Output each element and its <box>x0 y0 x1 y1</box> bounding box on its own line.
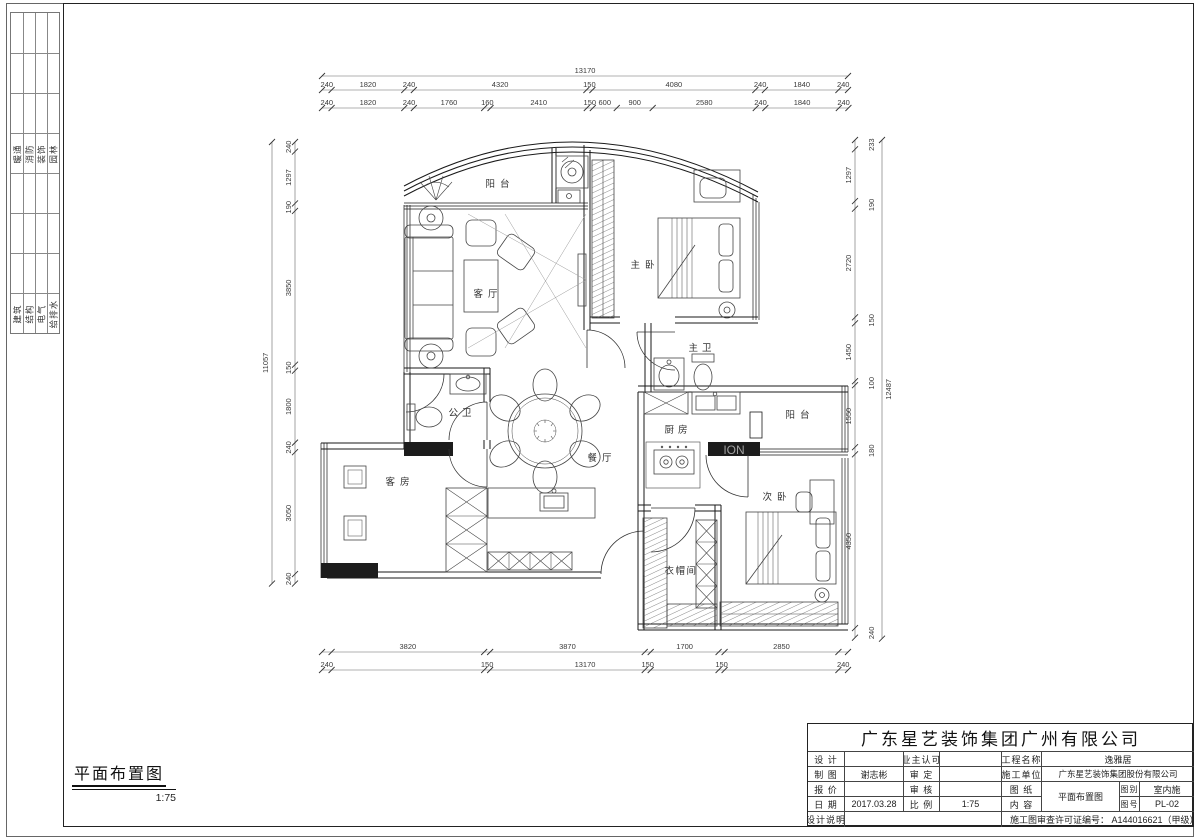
svg-text:190: 190 <box>867 199 876 212</box>
svg-text:1700: 1700 <box>676 642 693 651</box>
approve-label: 审 定 <box>903 766 939 781</box>
number-value: PL-02 <box>1139 796 1194 811</box>
svg-text:150: 150 <box>583 80 596 89</box>
svg-text:2580: 2580 <box>696 98 713 107</box>
svg-text:1297: 1297 <box>284 169 293 186</box>
svg-text:1820: 1820 <box>360 80 377 89</box>
svg-text:150: 150 <box>584 98 597 107</box>
curved-facade <box>404 142 758 202</box>
drawing-content-value: 平面布置图 <box>1041 781 1119 811</box>
plant <box>420 176 452 200</box>
draft-value: 谢志彬 <box>844 766 903 781</box>
svg-text:1820: 1820 <box>360 98 377 107</box>
master-bath-sink <box>654 358 684 390</box>
view-title-text: 平面布置图 <box>72 760 166 787</box>
watermark: ION <box>723 443 744 457</box>
number-label: 图号 <box>1119 796 1139 811</box>
svg-text:1840: 1840 <box>794 98 811 107</box>
svg-text:240: 240 <box>867 627 876 640</box>
svg-text:240: 240 <box>403 80 416 89</box>
pouf <box>466 328 496 356</box>
room-label-master-bath: 主卫 <box>688 342 715 354</box>
permit-number: 施工图审查许可证编号： A144016621（甲级） <box>1001 811 1194 827</box>
svg-text:233: 233 <box>867 138 876 151</box>
svg-text:240: 240 <box>321 98 334 107</box>
floor-plan: ION <box>0 0 1200 840</box>
svg-text:240: 240 <box>284 141 293 154</box>
nightstand <box>815 588 829 602</box>
svg-text:150: 150 <box>641 660 654 669</box>
room-label-balcony-top: 阳台 <box>485 178 514 190</box>
pouf <box>466 220 496 246</box>
desk <box>810 480 834 524</box>
builder-value: 广东星艺装饰集团股份有限公司 <box>1041 766 1194 781</box>
draft-label: 制 图 <box>808 766 844 781</box>
svg-text:240: 240 <box>837 98 850 107</box>
owner-approval-label: 业主认可 <box>903 751 939 766</box>
svg-text:240: 240 <box>837 80 850 89</box>
svg-text:240: 240 <box>754 80 767 89</box>
hanging-rail <box>643 518 667 628</box>
tv <box>578 254 586 306</box>
quote-label: 报 价 <box>808 781 844 796</box>
svg-text:600: 600 <box>599 98 612 107</box>
project-name-value: 逸雅居 <box>1041 751 1194 766</box>
svg-text:240: 240 <box>754 98 767 107</box>
kitchen-sink <box>692 392 740 414</box>
sofa <box>405 206 453 368</box>
svg-text:3850: 3850 <box>284 280 293 297</box>
notes-value <box>844 811 1001 827</box>
owner-approval-value <box>939 751 1001 766</box>
svg-text:240: 240 <box>403 98 416 107</box>
svg-text:1297: 1297 <box>844 167 853 184</box>
svg-text:3050: 3050 <box>284 505 293 522</box>
balcony-sink <box>558 190 580 203</box>
svg-text:150: 150 <box>867 314 876 327</box>
svg-text:3820: 3820 <box>400 642 417 651</box>
walls <box>321 142 848 630</box>
svg-text:4320: 4320 <box>492 80 509 89</box>
svg-text:160: 160 <box>481 98 494 107</box>
svg-text:4350: 4350 <box>844 533 853 550</box>
room-label-second-bedroom: 次卧 <box>762 491 791 503</box>
svg-text:150: 150 <box>284 361 293 374</box>
guest-bath-sink <box>450 374 486 394</box>
category-value: 室内施 <box>1139 781 1194 796</box>
room-label-cloakroom: 衣帽间 <box>664 565 697 577</box>
guest-bath-toilet <box>407 404 442 430</box>
cloak-shelf <box>667 604 717 626</box>
svg-text:1800: 1800 <box>284 398 293 415</box>
sheet-label: 图 纸 <box>1001 781 1041 796</box>
room-label-master-bedroom: 主卧 <box>630 259 659 271</box>
svg-text:1450: 1450 <box>844 344 853 361</box>
room-label-guest-room: 客房 <box>385 476 414 488</box>
svg-text:1550: 1550 <box>844 408 853 425</box>
svg-text:240: 240 <box>284 573 293 586</box>
washing-machine <box>556 156 588 188</box>
svg-text:150: 150 <box>481 660 494 669</box>
dimension-chains: 1317024018202404320150408024018402402401… <box>261 66 893 673</box>
svg-text:2720: 2720 <box>844 255 853 272</box>
stove <box>646 442 700 488</box>
svg-text:13170: 13170 <box>575 66 596 75</box>
approve-value <box>939 766 1001 781</box>
view-title-underline <box>72 789 176 790</box>
design-value <box>844 751 903 766</box>
svg-text:150: 150 <box>715 660 728 669</box>
company-name: 广东星艺装饰集团广州有限公司 <box>808 724 1194 751</box>
second-bedroom-door <box>706 455 748 497</box>
tall-cabinet <box>446 488 487 572</box>
master-bed <box>658 218 740 298</box>
notes-label: 设计说明 <box>808 811 844 827</box>
cloak-cabinet <box>696 520 717 608</box>
view-scale: 1:75 <box>72 792 176 804</box>
drawing-sheet: { "sheet": { "disciplines_top": ["暖通", "… <box>0 0 1200 840</box>
svg-text:1840: 1840 <box>793 80 810 89</box>
low-cabinet <box>488 552 572 570</box>
guest-room-door <box>449 449 487 487</box>
room-label-kitchen: 厨房 <box>664 424 691 436</box>
review-label: 审 核 <box>903 781 939 796</box>
master-bath-toilet <box>692 354 714 390</box>
desk <box>694 170 740 202</box>
room-label-living: 客厅 <box>473 288 502 300</box>
content-label: 内 容 <box>1001 796 1041 811</box>
dining-table <box>485 369 605 493</box>
room-label-guest-bath: 公卫 <box>448 408 475 419</box>
svg-text:3870: 3870 <box>559 642 576 651</box>
svg-text:240: 240 <box>837 660 850 669</box>
second-bed <box>746 512 836 584</box>
svg-text:190: 190 <box>284 201 293 214</box>
svg-text:13170: 13170 <box>575 660 596 669</box>
master-bedroom-door <box>587 330 625 368</box>
svg-text:2850: 2850 <box>773 642 790 651</box>
svg-text:2410: 2410 <box>530 98 547 107</box>
svg-text:240: 240 <box>321 660 334 669</box>
scale-label: 比 例 <box>903 796 939 811</box>
design-label: 设 计 <box>808 751 844 766</box>
bedroom-wardrobe <box>720 602 838 626</box>
review-value <box>939 781 1001 796</box>
svg-text:240: 240 <box>321 80 334 89</box>
nightstand <box>719 302 735 318</box>
svg-text:180: 180 <box>867 444 876 457</box>
date-label: 日 期 <box>808 796 844 811</box>
svg-text:11057: 11057 <box>261 353 270 373</box>
title-block: 广东星艺装饰集团广州有限公司 设 计 业主认可 工程名称 逸雅居 制 图 谢志彬… <box>807 723 1193 826</box>
room-label-dining: 餐厅 <box>587 452 616 464</box>
date-value: 2017.03.28 <box>844 796 903 811</box>
svg-text:4080: 4080 <box>666 80 683 89</box>
scale-value: 1:75 <box>939 796 1001 811</box>
svg-text:240: 240 <box>284 441 293 454</box>
doors <box>406 330 748 575</box>
view-title-block: 平面布置图 1:75 <box>72 760 182 804</box>
fridge <box>644 392 688 414</box>
guest-room-furniture <box>344 466 366 540</box>
room-label-balcony-right: 阳台 <box>785 409 814 421</box>
coffee-table <box>464 260 498 312</box>
desk-chair <box>796 492 812 512</box>
builder-label: 施工单位 <box>1001 766 1041 781</box>
project-name-label: 工程名称 <box>1001 751 1041 766</box>
svg-text:1760: 1760 <box>441 98 458 107</box>
svg-text:900: 900 <box>628 98 641 107</box>
svg-text:100: 100 <box>867 377 876 390</box>
shower-curtain-arc <box>406 374 444 412</box>
quote-value <box>844 781 903 796</box>
category-label: 图别 <box>1119 781 1139 796</box>
armchair <box>495 232 536 272</box>
svg-text:12487: 12487 <box>884 379 893 400</box>
